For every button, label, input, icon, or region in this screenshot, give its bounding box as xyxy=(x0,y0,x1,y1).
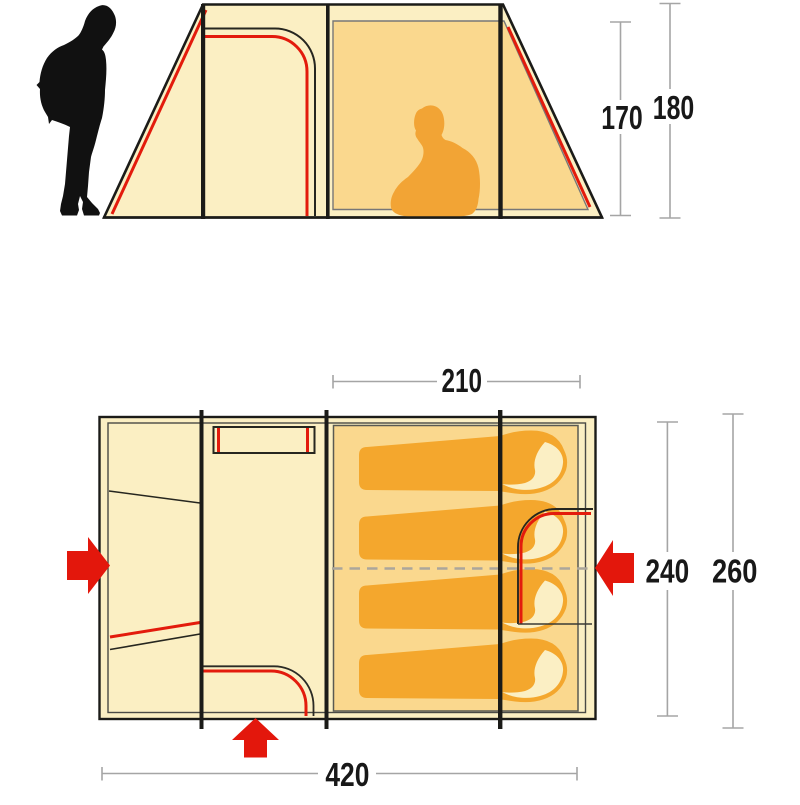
svg-text:260: 260 xyxy=(712,553,758,590)
svg-text:170: 170 xyxy=(601,99,643,136)
svg-text:240: 240 xyxy=(645,553,689,590)
svg-text:210: 210 xyxy=(441,362,482,399)
svg-text:180: 180 xyxy=(653,89,695,126)
svg-text:420: 420 xyxy=(325,756,369,793)
